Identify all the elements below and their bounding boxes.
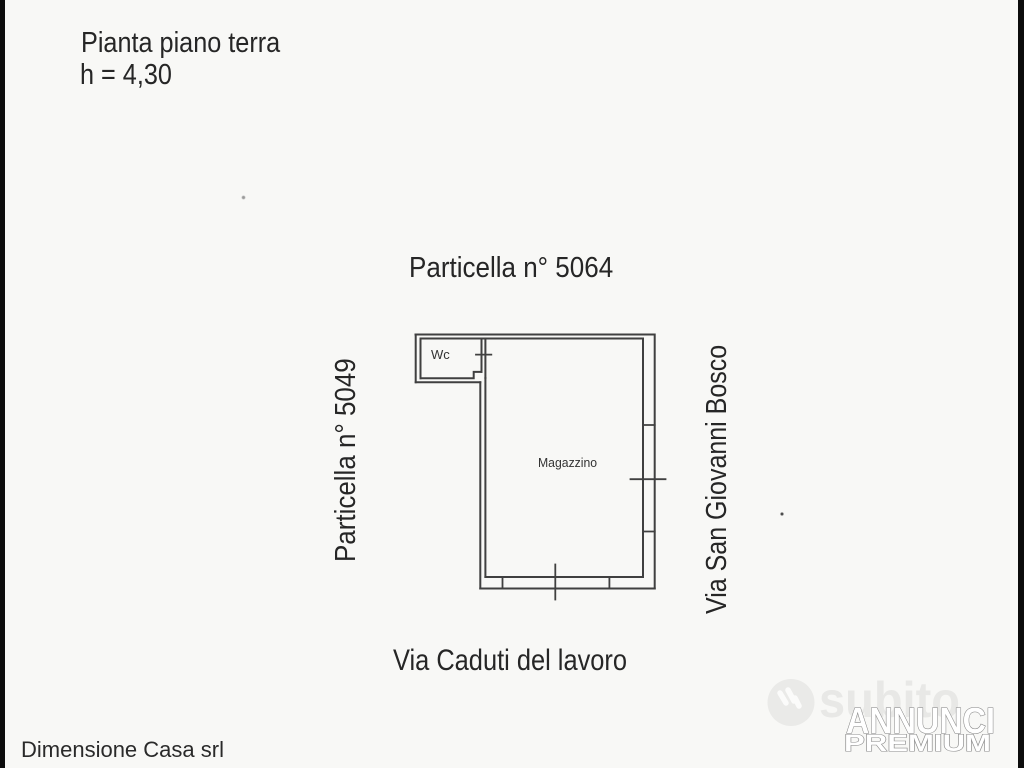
svg-text:PREMIUM: PREMIUM xyxy=(844,730,991,757)
